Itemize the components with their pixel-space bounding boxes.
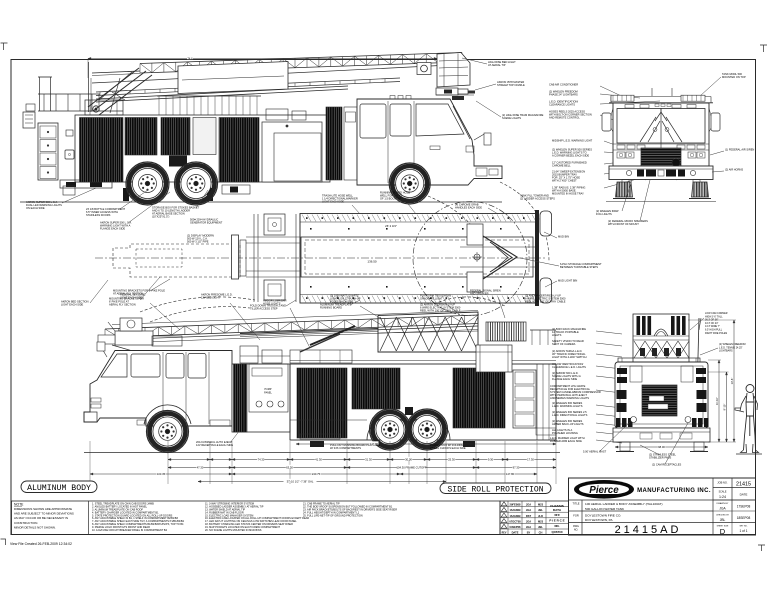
- svg-text:NOTE: NOTE: [14, 502, 24, 506]
- svg-text:JGA: JGA: [719, 506, 726, 510]
- svg-text:REEL WITH 150' OF TRAY CABLE: REEL WITH 150' OF TRAY CABLE: [525, 300, 566, 304]
- svg-text:37'-10 1/2" -7.36" OAL: 37'-10 1/2" -7.36" OAL: [287, 480, 314, 484]
- svg-text:16JAN09: 16JAN09: [510, 514, 522, 518]
- svg-text:RUNNING BOARD: RUNNING BOARD: [320, 306, 342, 310]
- svg-text:LIGHT EACH SIDE: LIGHT EACH SIDE: [322, 200, 345, 204]
- svg-text:LIGHTS: LIGHTS: [552, 333, 562, 337]
- svg-text:17SEP08: 17SEP08: [737, 505, 751, 509]
- svg-text:AS MAY OCCUR OR BE NECESSARY I: AS MAY OCCUR OR BE NECESSARY IN: [14, 516, 68, 520]
- svg-text:FLANGE EACH SIDE: FLANGE EACH SIDE: [100, 227, 125, 231]
- svg-text:MIDSHIP L.E.D. WARNING LIGHT: MIDSHIP L.E.D. WARNING LIGHT: [552, 139, 593, 143]
- svg-text:FLANGE EACH SIDE: FLANGE EACH SIDE: [552, 377, 577, 381]
- svg-text:RUBBER ARM EACH SIDE: RUBBER ARM EACH SIDE: [550, 439, 582, 443]
- svg-text:D: D: [720, 527, 726, 536]
- svg-text:MANUFACTURING INC.: MANUFACTURING INC.: [637, 488, 711, 494]
- svg-text:LIGHT EACH SIDE: LIGHT EACH SIDE: [61, 303, 84, 307]
- svg-text:BY: BY: [527, 531, 531, 535]
- svg-text:21415: 21415: [736, 481, 751, 487]
- svg-text:74.6: 74.6: [187, 57, 193, 61]
- svg-text:P I E R C E: P I E R C E: [549, 519, 564, 523]
- svg-text:POLES EACH SIDE: POLES EACH SIDE: [330, 300, 354, 304]
- svg-text:147.80: 147.80: [370, 442, 379, 446]
- svg-text:MOUNTED ON TOP: MOUNTED ON TOP: [722, 75, 746, 79]
- svg-text:12V RECEPTACLE EACH SIDE: 12V RECEPTACLE EACH SIDE: [196, 443, 233, 447]
- svg-text:JBL: JBL: [538, 525, 543, 529]
- svg-text:17.30: 17.30: [527, 458, 534, 462]
- svg-text:CONSTRUCTION.: CONSTRUCTION.: [14, 521, 38, 525]
- svg-text:WITH FRONT OF MOUNT: WITH FRONT OF MOUNT: [608, 222, 639, 226]
- svg-text:103.35: 103.35: [157, 472, 166, 476]
- svg-text:25. FULL LIFE-NET-TIP OF GROUN: 25. FULL LIFE-NET-TIP OF GROUND PROTECTI…: [303, 514, 363, 517]
- svg-text:DOYLESTOWN, PA: DOYLESTOWN, PA: [585, 518, 613, 522]
- svg-text:5.00' AERIAL MAST: 5.00' AERIAL MAST: [583, 450, 607, 454]
- svg-text:FOG LIGHTS: FOG LIGHTS: [596, 212, 612, 216]
- svg-text:47.30: 47.30: [197, 466, 204, 470]
- svg-text:CH: CH: [539, 531, 543, 535]
- svg-text:AND SERIES WARNING LIGHTS: AND SERIES WARNING LIGHTS: [550, 396, 589, 400]
- svg-text:JGA: JGA: [526, 503, 531, 507]
- svg-text:04SEP08: 04SEP08: [510, 525, 522, 529]
- svg-text:240.75: 240.75: [312, 472, 321, 476]
- svg-text:LIGHTBARS: LIGHTBARS: [719, 350, 733, 353]
- svg-text:HANDLES EACH SIDE: HANDLES EACH SIDE: [455, 206, 482, 210]
- svg-text:STAINLESS DOORS: STAINLESS DOORS: [86, 213, 111, 217]
- svg-text:CLEARANCE LIGHTS: CLEARANCE LIGHTS: [549, 103, 575, 107]
- svg-text:L.E.D. WARNING LIGHTS: L.E.D. WARNING LIGHTS: [552, 404, 583, 408]
- svg-text:JBL: JBL: [538, 508, 543, 512]
- svg-text:DATA: DATA: [553, 508, 562, 512]
- svg-text:MOUNTED IN HOSE TRAY: MOUNTED IN HOSE TRAY: [552, 192, 584, 196]
- svg-text:PANEL: PANEL: [264, 391, 272, 394]
- svg-text:1 of 1: 1 of 1: [740, 529, 748, 533]
- svg-text:ALUMINUM BODY: ALUMINUM BODY: [27, 484, 91, 493]
- svg-text:31.30: 31.30: [365, 458, 372, 462]
- svg-text:CLEARANCE L.E.D. LIGHTS: CLEARANCE L.E.D. LIGHTS: [552, 365, 586, 369]
- svg-text:SCALE: SCALE: [719, 491, 727, 494]
- svg-text:BETWEEN TURNTABLE STEPS: BETWEEN TURNTABLE STEPS: [560, 265, 598, 269]
- svg-text:MDL: MDL: [555, 526, 561, 528]
- svg-text:21415AD: 21415AD: [615, 524, 682, 536]
- svg-text:98.00: 98.00: [658, 445, 665, 449]
- svg-text:LIGHT WITH 4-WAY SWITCH: LIGHT WITH 4-WAY SWITCH: [552, 355, 587, 359]
- svg-text:WHEEL CHOCKS EACH SIDE: WHEEL CHOCKS EACH SIDE: [430, 446, 466, 450]
- svg-text:(1) FEDERAL AIR SIREN: (1) FEDERAL AIR SIREN: [725, 148, 754, 152]
- svg-text:JOB NO.: JOB NO.: [717, 481, 728, 485]
- svg-text:97.30: 97.30: [513, 466, 520, 470]
- svg-text:74.30: 74.30: [258, 458, 265, 462]
- svg-text:MFR: MFR: [555, 515, 560, 517]
- svg-text:POLISHED HOUSING: POLISHED HOUSING: [552, 431, 578, 435]
- svg-text:11'-10": 11'-10": [715, 397, 719, 405]
- svg-text:PHASE 24" LIGHTBARS: PHASE 24" LIGHTBARS: [549, 93, 578, 97]
- svg-text:AND REMOTE CONTROL: AND REMOTE CONTROL: [549, 116, 580, 120]
- svg-text:13'-6": 13'-6": [730, 378, 734, 385]
- svg-text:10. 12A/FUSE CIRCUIT BREAKER P: 10. 12A/FUSE CIRCUIT BREAKER PANEL IN CO…: [92, 529, 168, 532]
- svg-text:L.E.D. DIRECTIONAL LIGHTS: L.E.D. DIRECTIONAL LIGHTS: [552, 413, 588, 417]
- svg-text:100 AERIAL LADDER & BODY ASSEM: 100 AERIAL LADDER & BODY ASSEMBLY (HAL10…: [585, 502, 663, 506]
- svg-text:JGA: JGA: [526, 508, 531, 512]
- svg-text:MINOR DETAILS NOT SHOWN.: MINOR DETAILS NOT SHOWN.: [14, 525, 56, 529]
- svg-text:RIGHT FIRE POLES: RIGHT FIRE POLES: [705, 332, 728, 335]
- svg-text:9.30: 9.30: [488, 458, 494, 462]
- svg-text:OF 1.5 BOOSTER: OF 1.5 BOOSTER: [380, 197, 401, 201]
- svg-text:104.30 FRAME CUTOFF: 104.30 FRAME CUTOFF: [397, 466, 427, 470]
- svg-text:LIGHT EACH SIDE: LIGHT EACH SIDE: [120, 296, 143, 300]
- svg-text:AND ARE SUBJECT TO MINOR DEVIA: AND ARE SUBJECT TO MINOR DEVIATIONS: [14, 512, 74, 516]
- svg-text:MUD BIN: MUD BIN: [558, 235, 569, 239]
- svg-text:TILLER ACCESS STEP: TILLER ACCESS STEP: [250, 307, 278, 311]
- svg-text:SHT NO.: SHT NO.: [739, 525, 748, 527]
- svg-text:SCENE LIGHTS: SCENE LIGHTS: [502, 116, 521, 120]
- svg-text:MUD LIGHT BIN: MUD LIGHT BIN: [558, 279, 577, 283]
- svg-text:25.30: 25.30: [448, 458, 455, 462]
- svg-text:FOR: FOR: [573, 514, 579, 518]
- svg-text:07OCT08: 07OCT08: [509, 519, 521, 523]
- svg-text:AT AERIAL TIP: AT AERIAL TIP: [488, 63, 506, 67]
- svg-text:500 GALLON WATER TANK: 500 GALLON WATER TANK: [585, 507, 625, 511]
- svg-text:SHOT OF CAMERA: SHOT OF CAMERA: [552, 342, 576, 346]
- svg-text:29FEB08: 29FEB08: [510, 503, 522, 507]
- svg-text:136.50: 136.50: [367, 260, 377, 264]
- svg-text:W/ 4X6 COMPARTMENTS: W/ 4X6 COMPARTMENTS: [330, 446, 361, 450]
- svg-text:500 W 3 1/2" PIPE: 500 W 3 1/2" PIPE: [187, 240, 209, 244]
- svg-text:HOSE LIGHTS: HOSE LIGHTS: [263, 302, 281, 306]
- svg-text:JGA: JGA: [526, 525, 531, 529]
- svg-text:View File Created 26-FEB-2009: View File Created 26-FEB-2009 12:34:02: [10, 542, 72, 546]
- svg-text:DOYLESTOWN FIRE CO.: DOYLESTOWN FIRE CO.: [585, 513, 621, 517]
- svg-text:WITH 2"X60" CHEST: WITH 2"X60" CHEST: [552, 179, 577, 183]
- svg-text:DRAWN BY: DRAWN BY: [717, 502, 729, 505]
- svg-text:(2) AIR HORNS: (2) AIR HORNS: [725, 168, 743, 172]
- svg-text:A CORNER BEZEL EACH SIDE: A CORNER BEZEL EACH SIDE: [552, 154, 589, 158]
- svg-text:1:24: 1:24: [719, 495, 726, 499]
- svg-text:CAB AIR CONDITIONER: CAB AIR CONDITIONER: [549, 83, 578, 87]
- svg-text:9'-10": 9'-10": [722, 404, 726, 411]
- svg-text:AND SPEAKER: AND SPEAKER: [470, 292, 489, 296]
- svg-text:M23: M23: [538, 503, 544, 507]
- svg-text:GENERATOR EQUIPMENT: GENERATOR EQUIPMENT: [190, 221, 223, 225]
- svg-text:DIMENSIONS SHOWN ARE APPROXIMA: DIMENSIONS SHOWN ARE APPROXIMATE: [14, 507, 72, 511]
- svg-text:CHECKED BY: CHECKED BY: [716, 514, 730, 516]
- svg-text:20. NO SCENE LIGHTS MOUNTED IN: 20. NO SCENE LIGHTS MOUNTED IN MUD BINS: [205, 529, 262, 532]
- svg-text:AERIAL FLY SECTION: AERIAL FLY SECTION: [109, 303, 136, 307]
- svg-text:12V BED LIGHT: 12V BED LIGHT: [201, 296, 220, 300]
- svg-text:RST: RST: [526, 514, 532, 518]
- svg-text:(10"X25"X1.5"): (10"X25"X1.5"): [152, 215, 169, 219]
- svg-text:DATE: DATE: [740, 493, 748, 497]
- svg-text:30.00: 30.00: [405, 458, 412, 462]
- svg-text:41.30: 41.30: [315, 458, 322, 462]
- svg-text:AMBER BACK-UP LIGHTS: AMBER BACK-UP LIGHTS: [552, 422, 584, 426]
- svg-text:JBL: JBL: [720, 518, 726, 522]
- svg-text:16JAN09: 16JAN09: [510, 508, 522, 512]
- svg-text:TITLE: TITLE: [572, 502, 579, 506]
- svg-text:18SEP08: 18SEP08: [737, 516, 751, 520]
- svg-text:JGA: JGA: [526, 519, 531, 523]
- svg-text:M23: M23: [538, 519, 544, 523]
- svg-text:(2) LADDER ACCESS STEPS: (2) LADDER ACCESS STEPS: [520, 197, 555, 201]
- svg-text:DATE: DATE: [512, 531, 519, 535]
- svg-text:GRADUATE LIGHT: GRADUATE LIGHT: [420, 297, 443, 301]
- svg-text:26' 2 3/4": 26' 2 3/4": [385, 224, 397, 228]
- svg-text:ON EACH SIDE: ON EACH SIDE: [26, 206, 45, 210]
- svg-text:REV: REV: [502, 532, 507, 534]
- svg-text:JLD: JLD: [538, 514, 543, 518]
- svg-text:63.30: 63.30: [286, 466, 293, 470]
- svg-text:STREAM TOP NOZZLE: STREAM TOP NOZZLE: [497, 83, 525, 87]
- svg-text:QX6700: QX6700: [551, 530, 562, 534]
- svg-text:CHROME BELL: CHROME BELL: [552, 164, 571, 168]
- svg-text:(2) CAM RECEPTACLES: (2) CAM RECEPTACLES: [652, 463, 681, 467]
- svg-text:SIDE ROLL PROTECTION: SIDE ROLL PROTECTION: [447, 486, 543, 495]
- svg-text:NO.: NO.: [574, 528, 579, 531]
- svg-text:147.80: 147.80: [506, 472, 515, 476]
